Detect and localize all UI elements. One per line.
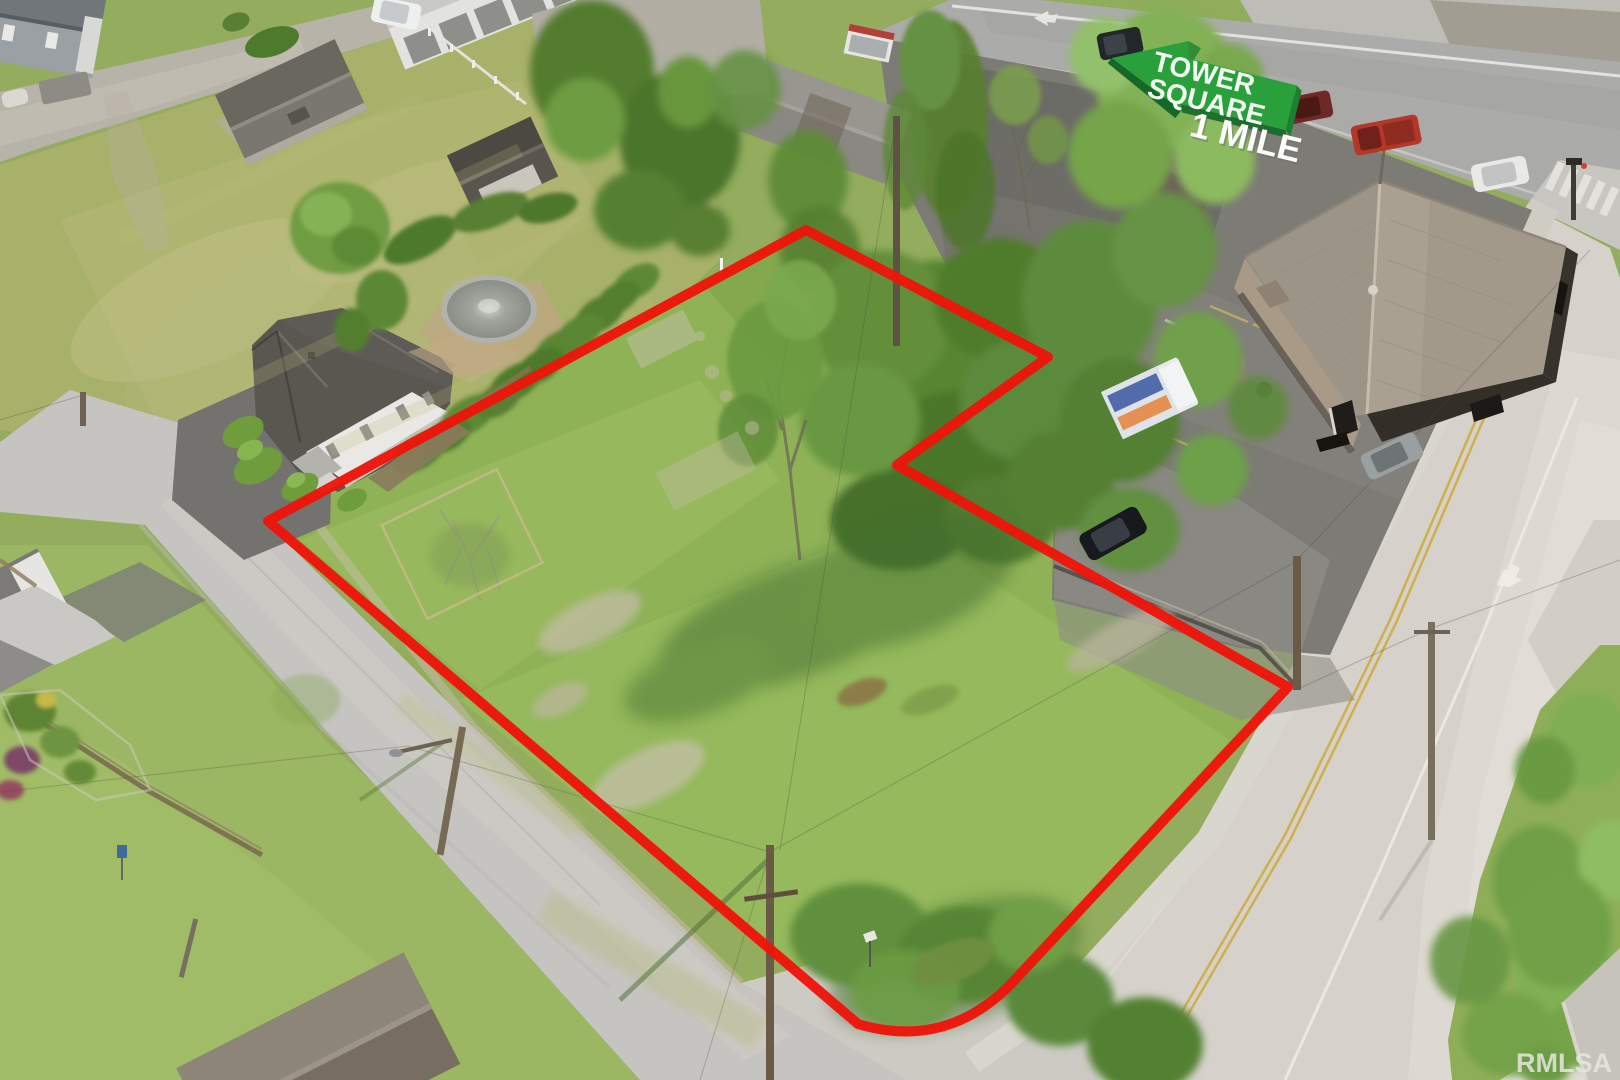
svg-text:RMLSA: RMLSA [1516,1048,1612,1078]
